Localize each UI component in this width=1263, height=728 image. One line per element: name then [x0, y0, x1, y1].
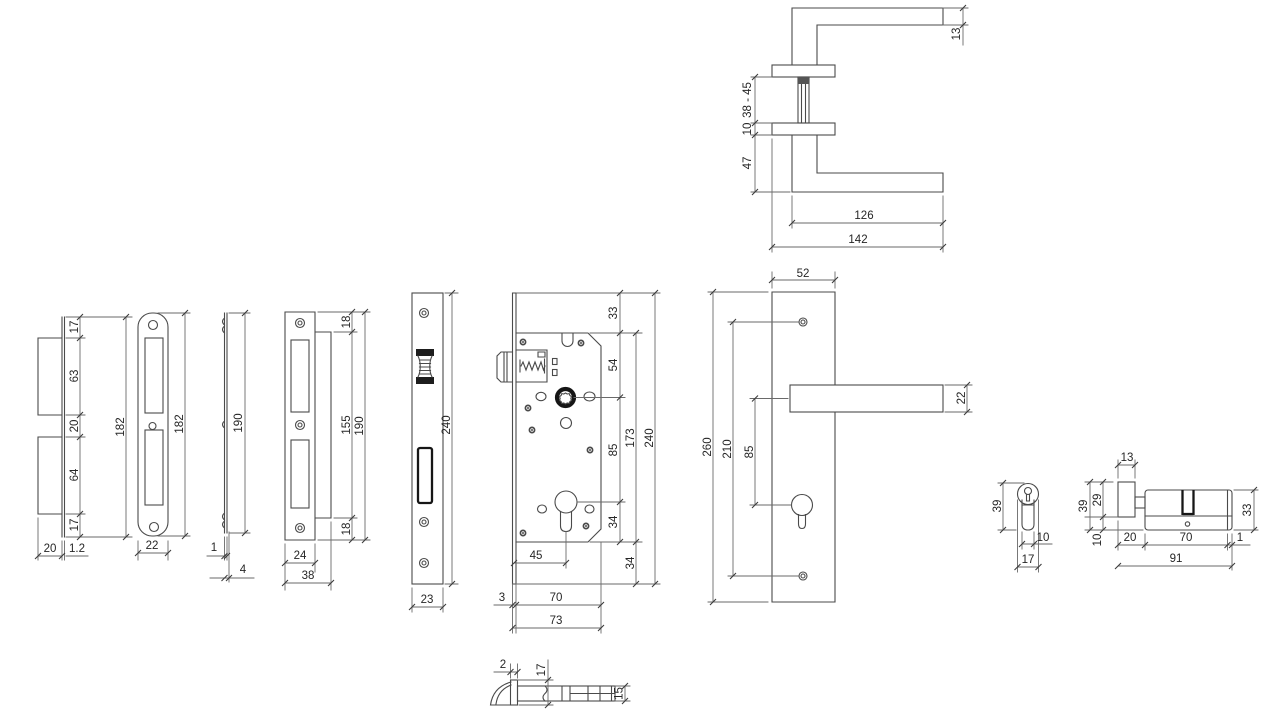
dim-label: 34: [625, 556, 637, 569]
dim-label: 210: [722, 439, 734, 458]
dim-label: 85: [608, 444, 620, 457]
dim-label: 126: [854, 210, 873, 222]
dim-label: 240: [644, 428, 656, 447]
dim-label: 63: [69, 370, 81, 383]
dim-label: 13: [1121, 452, 1134, 464]
dim-label: 18: [341, 523, 353, 536]
lever-handle-pair-view: 38 - 45 10 47 13 126 142: [742, 5, 968, 252]
dim-label: 23: [421, 594, 434, 606]
dim-label: 155: [341, 415, 353, 434]
dim-label: 39: [1078, 500, 1090, 513]
dim-label: 33: [608, 307, 620, 320]
cylinder-front-view: 39 10 17: [992, 480, 1052, 572]
dim-label: 17: [536, 664, 548, 677]
technical-drawing-canvas: 17 63 20 64 17 182 20 1.2 182 22 190 1 4: [0, 0, 1263, 728]
dim-label: 1: [211, 542, 217, 554]
dim-label: 54: [608, 358, 620, 371]
dim-label: 10: [742, 123, 754, 136]
dim-label: 85: [744, 446, 756, 459]
latch-bolt-detail-view: 2 17 15: [491, 659, 631, 708]
dim-label: 190: [233, 413, 245, 432]
dim-label: 4: [240, 564, 247, 576]
dim-label: 22: [956, 392, 968, 405]
strike-plate-side-view: 17 63 20 64 17 182 20 1.2: [35, 314, 132, 560]
dim-label: 17: [69, 321, 81, 334]
dim-label: 70: [550, 592, 563, 604]
dim-label: 260: [702, 437, 714, 456]
dim-label: 20: [44, 543, 57, 555]
dim-label: 142: [848, 234, 867, 246]
dim-label: 20: [1124, 532, 1137, 544]
dim-label: 34: [608, 515, 620, 528]
dim-label: 91: [1170, 553, 1183, 565]
dim-label: 10: [1037, 532, 1050, 544]
dim-label: 1: [1237, 532, 1243, 544]
dim-label: 70: [1180, 532, 1193, 544]
dim-label: 47: [742, 157, 754, 170]
dim-label: 190: [354, 416, 366, 435]
dim-label: 39: [992, 500, 1004, 513]
dim-label: 182: [174, 414, 186, 433]
dim-label: 13: [951, 28, 963, 41]
dim-label: 10: [1092, 534, 1104, 547]
dim-label: 1.2: [69, 543, 85, 555]
dim-label: 64: [69, 468, 81, 481]
dim-label: 20: [69, 420, 81, 433]
forend-faceplate-view: 240 23: [409, 290, 458, 612]
mortise-lock-case-view: 33 54 85 34 173 240 34 45 3 70 73: [494, 290, 660, 633]
dim-label: 45: [530, 550, 543, 562]
strike-plate-edge-view: 190 1 4: [207, 310, 254, 582]
dim-label: 15: [614, 687, 626, 700]
dim-label: 38 - 45: [742, 82, 754, 118]
dim-label: 24: [294, 550, 307, 562]
dim-label: 33: [1242, 504, 1254, 517]
dim-label: 3: [499, 592, 505, 604]
dim-label: 22: [146, 540, 159, 552]
dim-label: 182: [115, 417, 127, 436]
dim-label: 2: [500, 659, 506, 671]
cylinder-side-view: 13 39 29 10 20 70 1 91 33: [1078, 452, 1258, 570]
lipped-strike-plate-view: 18 155 18 190 24 38: [282, 309, 370, 590]
dim-label: 73: [550, 615, 563, 627]
dim-label: 38: [302, 570, 315, 582]
dim-label: 17: [69, 519, 81, 532]
dim-label: 29: [1092, 494, 1104, 507]
dim-label: 17: [1022, 554, 1035, 566]
dim-label: 52: [797, 268, 810, 280]
strike-plate-face-view: 182 22: [135, 310, 190, 560]
dim-label: 18: [341, 316, 353, 329]
backplate-view: 52 260 210 85 22: [702, 268, 972, 605]
dim-label: 173: [625, 428, 637, 447]
dim-label: 240: [441, 415, 453, 434]
drawing-page: 17 63 20 64 17 182 20 1.2 182 22 190 1 4: [0, 0, 1263, 728]
